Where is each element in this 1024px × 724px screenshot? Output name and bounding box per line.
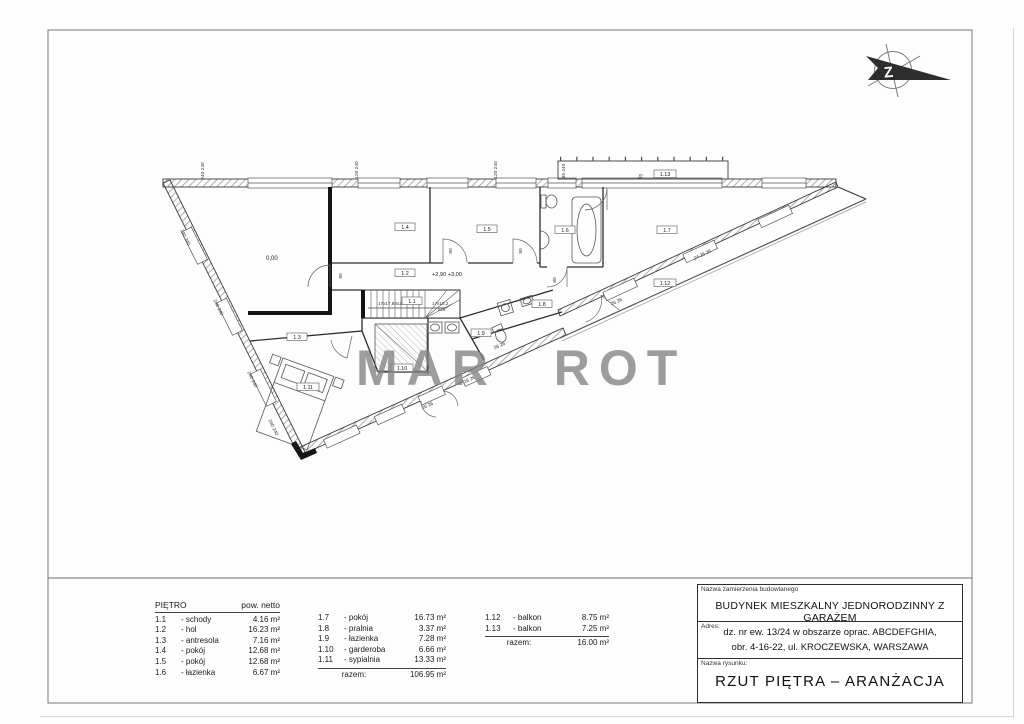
svg-text:1.12: 1.12	[660, 281, 671, 287]
legend-column-2: 1.7- pokój16.73 m² 1.8- pralnia3.37 m² 1…	[318, 613, 446, 681]
legend-column-3: 1.12- balkon8.75 m² 1.13- balkon7.25 m² …	[485, 613, 609, 649]
north-arrow-icon: Z	[866, 44, 951, 97]
address-line-1: dz. nr ew. 13/24 w obszarze oprac. ABCDE…	[698, 627, 962, 638]
legend-row: 1.12- balkon8.75 m²	[485, 613, 609, 624]
room-label-1-2: 1.2	[395, 269, 415, 277]
svg-text:240 240: 240 240	[200, 162, 206, 180]
scan-edge-bottom	[40, 716, 1014, 717]
level-mark-ground: 0,00	[266, 256, 278, 262]
svg-text:90: 90	[338, 273, 344, 279]
svg-text:1.11: 1.11	[303, 385, 313, 391]
drawing-name: RZUT PIĘTRA – ARANŻACJA	[698, 673, 962, 690]
legend-row: 1.2- hol16.23 m²	[155, 625, 280, 636]
title-block-address-row: Adres: dz. nr ew. 13/24 w obszarze oprac…	[698, 622, 962, 659]
legend-row: 1.11- sypialnia13.33 m²	[318, 655, 446, 666]
title-block-project-row: Nazwa zamierzenia budowlanego BUDYNEK MI…	[698, 585, 962, 622]
stair-dim-right: 17x18,2	[432, 301, 449, 306]
svg-text:90: 90	[448, 248, 454, 254]
legend-title: PIĘTRO	[155, 600, 187, 611]
legend-row: 1.7- pokój16.73 m²	[318, 613, 446, 624]
legend-row: 1.9- łazienka7.28 m²	[318, 634, 446, 645]
room-label-1-4: 1.4	[395, 223, 415, 231]
svg-text:85 240: 85 240	[561, 163, 567, 178]
legend-total-interior: razem: 106.95 m²	[318, 668, 446, 681]
left-windows	[181, 227, 276, 406]
level-mark-upper: +2,90 +3,00	[432, 272, 462, 278]
room-label-1-5: 1.5	[477, 225, 497, 233]
void-edge-wall	[248, 187, 330, 313]
room-label-1-11: 1.11	[297, 383, 319, 391]
washbasin-icon	[540, 231, 549, 249]
svg-text:1.2: 1.2	[401, 271, 409, 277]
svg-text:1.4: 1.4	[401, 225, 409, 231]
balcony-wall-windows	[603, 205, 793, 300]
legend-header: PIĘTRO pow. netto	[155, 600, 280, 613]
room-label-1-6: 1.6	[555, 226, 575, 234]
svg-text:80: 80	[552, 277, 558, 283]
svg-text:1.9: 1.9	[477, 331, 485, 337]
svg-text:1.5: 1.5	[483, 227, 491, 233]
room-label-1-9: 1.9	[471, 329, 491, 337]
legend-row: 1.4- pokój12.68 m²	[155, 646, 280, 657]
svg-text:1.3: 1.3	[293, 335, 301, 341]
watermark: MAR ROT	[356, 340, 686, 396]
room-label-1-1: 1.1	[402, 297, 422, 305]
legend-area-header: pow. netto	[241, 600, 280, 611]
scan-edge-right	[1013, 28, 1014, 718]
project-label: Nazwa zamierzenia budowlanego	[701, 586, 798, 593]
project-name: BUDYNEK MIESZKALNY JEDNORODZINNY Z GARAŻ…	[698, 600, 962, 624]
legend-row: 1.6- łazienka6.67 m²	[155, 668, 280, 679]
svg-text:120 240: 120 240	[354, 161, 360, 179]
address-line-2: obr. 4-16-22, ul. KROCZEWSKA, WARSZAWA	[698, 642, 962, 653]
svg-text:90: 90	[518, 248, 524, 254]
svg-text:240 240: 240 240	[266, 418, 279, 437]
svg-text:1.1: 1.1	[408, 299, 416, 305]
svg-text:1.6: 1.6	[561, 228, 569, 234]
legend-row: 1.13- balkon7.25 m²	[485, 624, 609, 635]
legend-row: 1.3- antresola7.16 m²	[155, 636, 280, 647]
svg-text:1.8: 1.8	[538, 302, 546, 308]
stair-dim-right2: x28	[438, 307, 446, 312]
legend-row: 1.1- schody4.16 m²	[155, 615, 280, 626]
drawing-label: Nazwa rysunku:	[701, 660, 747, 667]
room-label-1-3: 1.3	[287, 333, 307, 341]
legend-row: 1.5- pokój12.68 m²	[155, 657, 280, 668]
room-label-1-8: 1.8	[532, 300, 552, 308]
svg-text:1.7: 1.7	[663, 228, 671, 234]
stair-dim-left: 17x17,85x27	[378, 301, 405, 306]
legend-row: 1.8- pralnia3.37 m²	[318, 624, 446, 635]
title-block-drawing-row: Nazwa rysunku: RZUT PIĘTRA – ARANŻACJA	[698, 659, 962, 701]
north-letter: Z	[883, 64, 894, 82]
room-label-1-12: 1.12	[654, 279, 676, 287]
room-label-1-13: 1.13	[654, 170, 676, 178]
svg-text:1.13: 1.13	[660, 172, 671, 178]
drawing-sheet: 17x17,85x27 17x18,2 x28	[0, 0, 1024, 724]
title-block: Nazwa zamierzenia budowlanego BUDYNEK MI…	[697, 584, 963, 703]
svg-text:120 240: 120 240	[493, 161, 499, 179]
legend-total-balconies: razem: 16.00 m²	[485, 636, 609, 649]
legend-row: 1.10- garderoba6.66 m²	[318, 645, 446, 656]
room-label-1-7: 1.7	[657, 226, 677, 234]
toilet-icon	[541, 195, 557, 208]
legend-column-1: PIĘTRO pow. netto 1.1- schody4.16 m² 1.2…	[155, 600, 280, 678]
